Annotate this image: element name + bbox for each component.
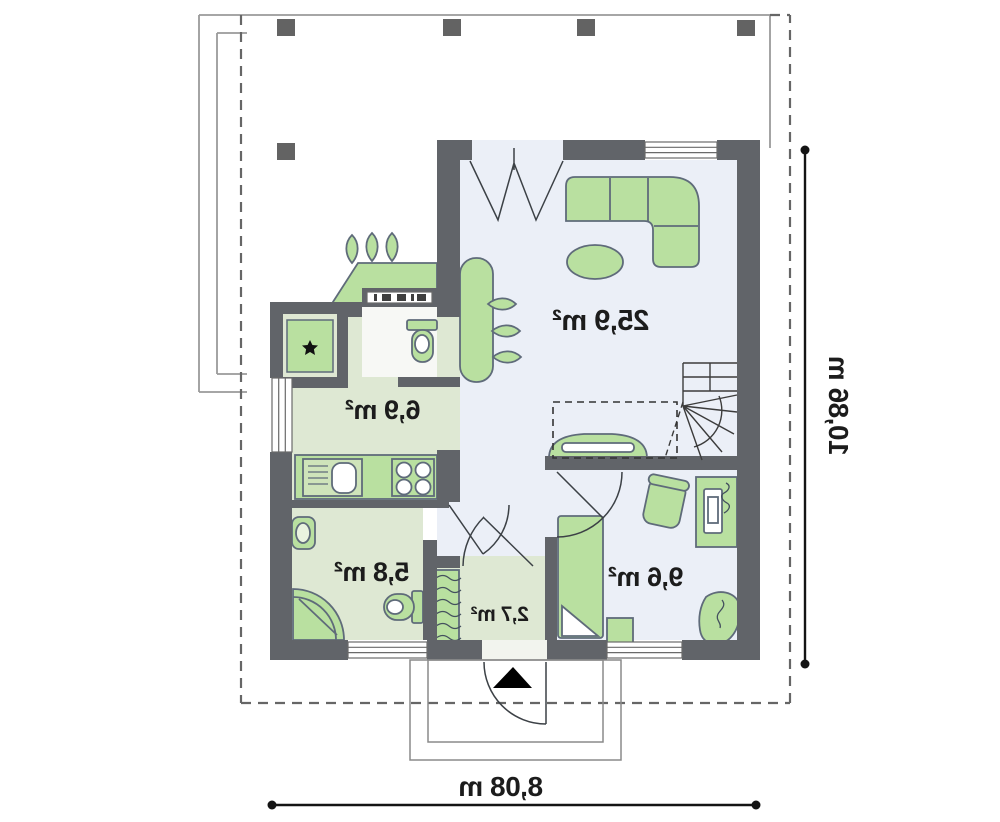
- french-door-floor: [472, 140, 563, 160]
- sink-bowl: [332, 463, 356, 493]
- dimension-height-label: 10,86 m: [823, 356, 854, 455]
- left-wall-lower: [270, 452, 292, 660]
- wc-cistern: [407, 320, 437, 330]
- living-west-wall: [437, 140, 460, 317]
- pillar: [443, 19, 461, 36]
- dimension-width-label: 8,08 m: [459, 771, 543, 802]
- room-label-living: 25,9 m²: [552, 305, 649, 337]
- room-label-vestibule: 2,7 m²: [471, 603, 529, 626]
- entrance-arrow: [493, 667, 532, 688]
- desk-monitor: [704, 489, 722, 533]
- room-label-bedroom: 9,6 m²: [608, 562, 684, 592]
- dimension-right: 10,86 m: [801, 146, 855, 669]
- hall-bedroom-wall: [545, 537, 557, 640]
- dimension-bottom: 8,08 m: [268, 771, 761, 810]
- kitchen-bath-wall: [292, 500, 449, 508]
- floor-plan: 8,08 m 10,86 m 25,9 m² 6,9 m² 5,8 m² 2,7…: [0, 0, 1000, 822]
- indoor-plant-pot: [460, 258, 493, 382]
- bath-vestibule-wall: [423, 540, 437, 640]
- room-label-bathroom: 5,8 m²: [334, 557, 410, 587]
- nightstand: [607, 618, 633, 644]
- kitchen-wall-stub: [437, 450, 460, 502]
- bench-slot: [562, 443, 634, 452]
- window-bedroom: [607, 642, 682, 658]
- wc-seat: [415, 335, 429, 353]
- floor-plan-svg: 8,08 m 10,86 m 25,9 m² 6,9 m² 5,8 m² 2,7…: [0, 0, 1000, 822]
- room-label-kitchen: 6,9 m²: [345, 395, 421, 425]
- pillar: [737, 20, 755, 36]
- wc-bottom-wall: [398, 377, 460, 387]
- pillar: [277, 19, 295, 36]
- bedroom-door-floor: [545, 472, 557, 537]
- pass-through-hatch: [367, 292, 432, 303]
- right-wall: [737, 140, 760, 660]
- entrance-opening-floor: [482, 640, 547, 660]
- window-living-top: [645, 142, 717, 158]
- toilet-seat: [387, 600, 403, 614]
- vestibule-top-stub: [437, 556, 460, 568]
- coffee-table: [567, 245, 623, 279]
- pillar: [277, 143, 295, 160]
- washbasin-bowl: [296, 523, 310, 543]
- terrace-planter-leaves: [346, 233, 397, 263]
- pillars: [277, 19, 755, 160]
- window-bathroom: [348, 642, 427, 658]
- pillar: [577, 19, 595, 36]
- window-kitchen-left: [272, 378, 292, 452]
- pantry: [283, 314, 337, 377]
